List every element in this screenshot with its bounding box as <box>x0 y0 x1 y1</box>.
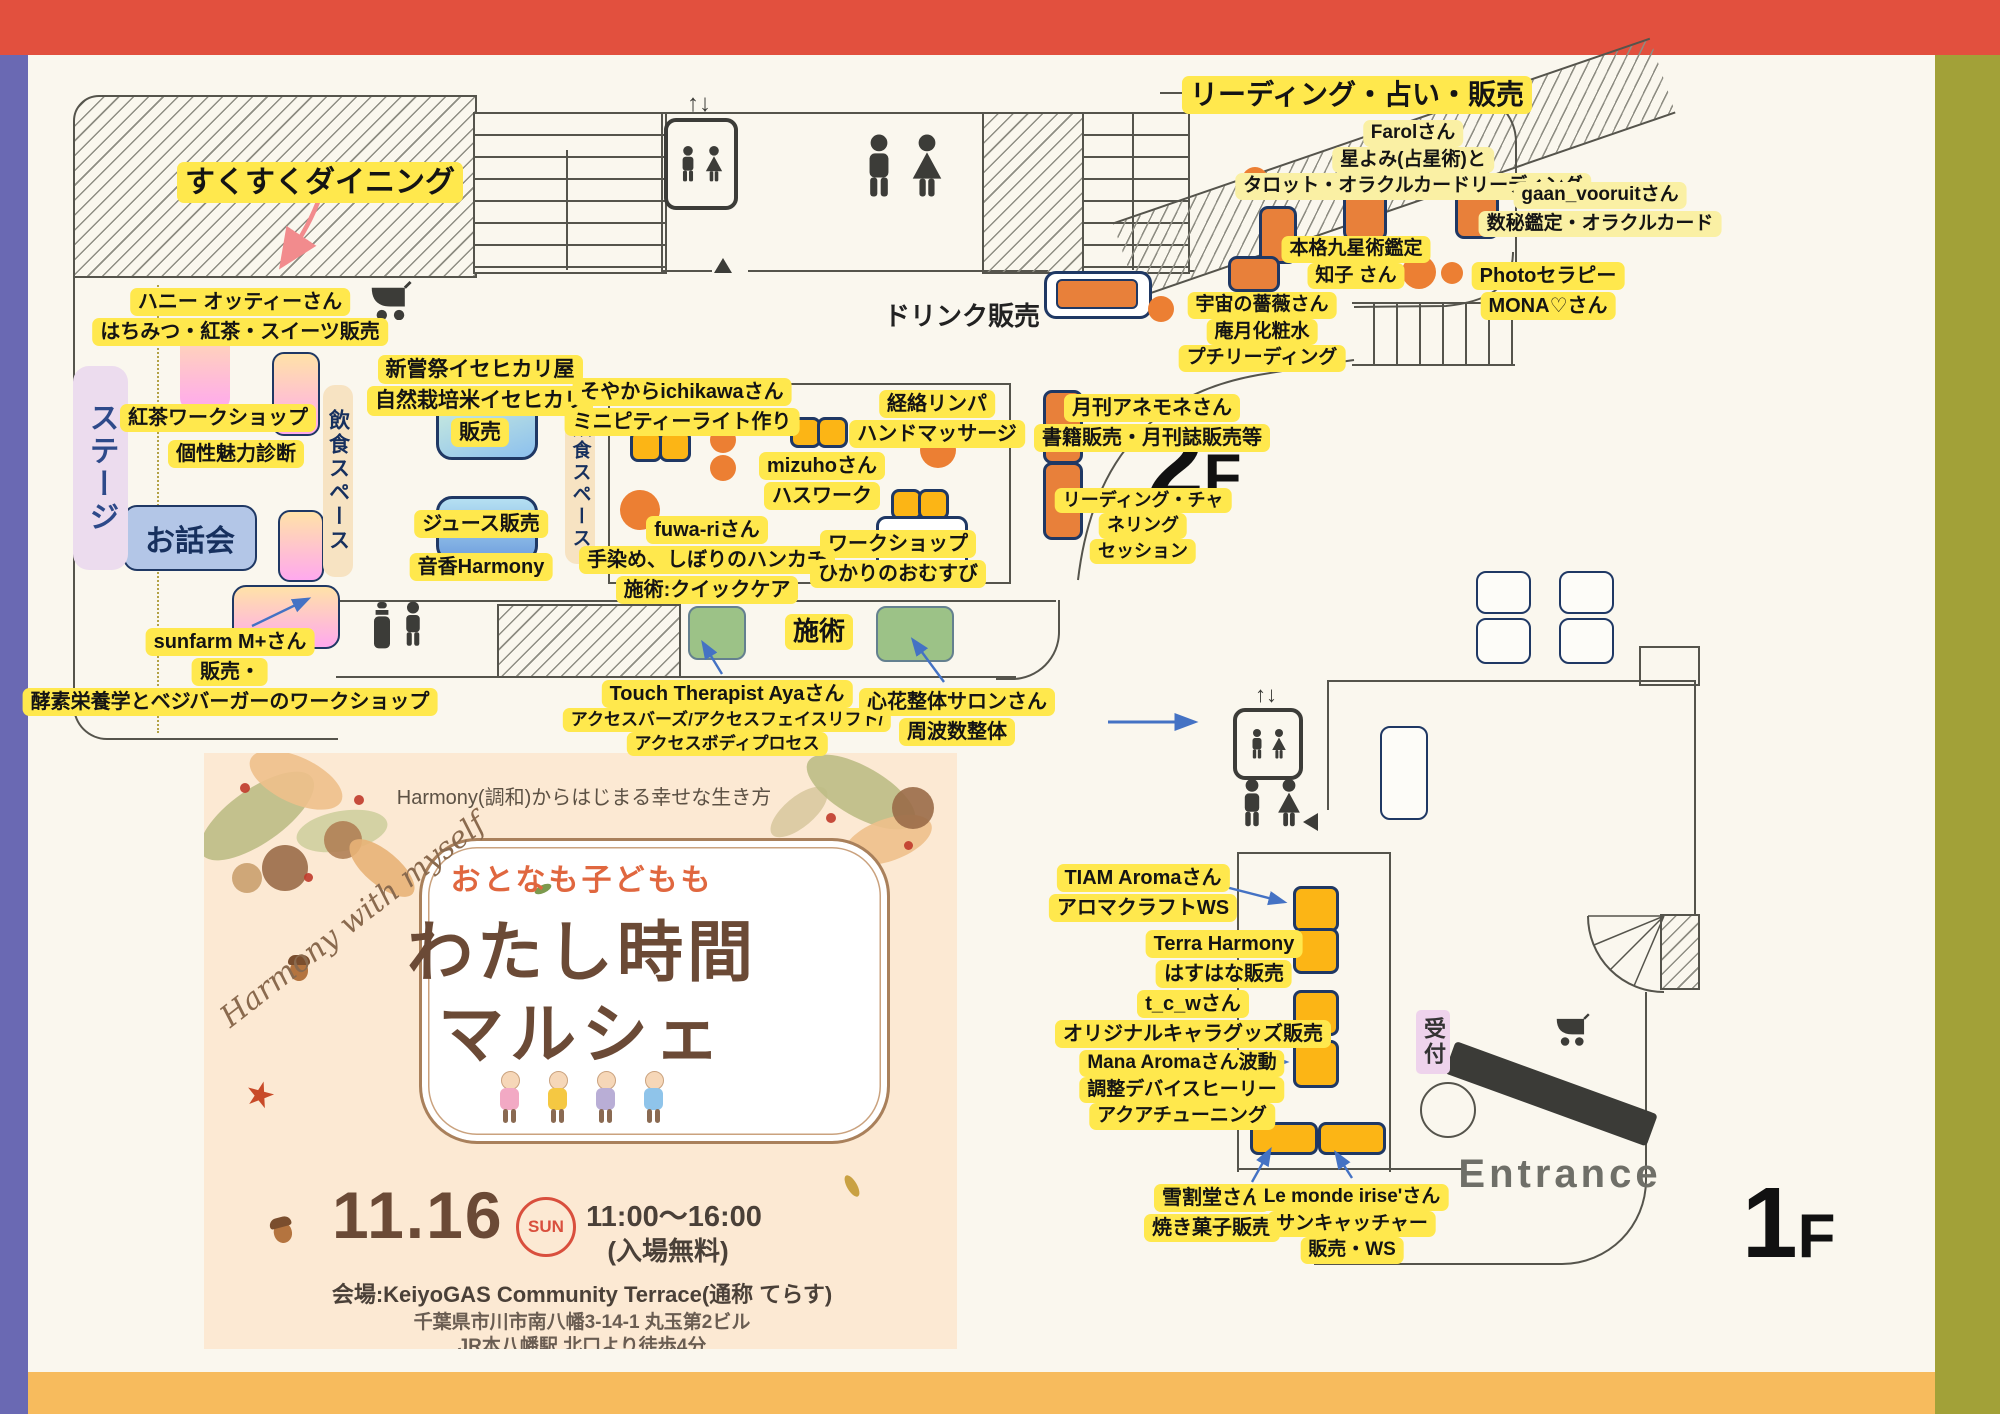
wall-segment <box>661 112 663 272</box>
right-olive-bar <box>1935 55 2000 1414</box>
berry-decoration <box>826 813 836 823</box>
vendor-label-kokohana: 心花整体サロンさん 周波数整体 <box>859 688 1055 746</box>
foliage-decoration <box>232 863 262 893</box>
poster-time: 11:00〜16:00 <box>586 1193 762 1235</box>
vendor-label-terra: Terra Harmony はすはな販売 <box>1146 930 1303 988</box>
kid-figure <box>541 1071 575 1125</box>
vendor-label-fuwari: fuwa-riさん 手染め、しぼりのハンカチ 施術:クイックケア <box>579 516 835 604</box>
berry-decoration <box>240 783 250 793</box>
restroom-icon <box>858 126 948 206</box>
poster-title-line2: マルシェ <box>438 981 726 1077</box>
elevator-arrows: ↑↓ <box>664 92 734 116</box>
poster-time-text: 11:00〜16:00 <box>586 1201 762 1233</box>
reception-label: 受付 <box>1422 1017 1444 1067</box>
wall-notch-room <box>1639 646 1700 686</box>
label-juice: ジュース販売 <box>414 510 548 538</box>
poster-date-text: 11.16 <box>332 1178 504 1252</box>
stairs-fan-treads <box>1588 916 1664 986</box>
vendor-label-soyakara: そやからichikawaさん ミニピティーライト作り <box>565 378 800 436</box>
poster-venue-text: 会場:KeiyoGAS Community Terrace(通称 てらす) <box>332 1282 832 1307</box>
booth-chair <box>1148 296 1174 322</box>
elevator-box <box>664 118 738 210</box>
ohanashikai-box: お話会 <box>123 505 257 571</box>
elevator-icon: ↑↓ <box>664 92 734 210</box>
hatched-area-1f-stairs <box>1660 914 1700 990</box>
acorn-decoration <box>272 1221 295 1245</box>
room-rect <box>1559 618 1614 664</box>
vendor-label-touch-therapist: Touch Therapist Ayaさん アクセスバーズ/アクセスフェイスリフ… <box>563 680 891 756</box>
top-red-bar <box>0 0 2000 55</box>
vendor-label-lemonde: Le monde irise'さん サンキャッチャー 販売・WS <box>1256 1184 1449 1264</box>
kid-figure <box>589 1071 623 1125</box>
vendor-label-keiraku: 経絡リンパ ハンドマッサージ <box>849 390 1025 448</box>
entrance-circle <box>1420 1082 1476 1138</box>
elevator-icon: ↑↓ <box>1233 684 1299 780</box>
room-rect <box>1476 618 1531 664</box>
poster-address-text: 千葉県市川市南八幡3-14-1 丸玉第2ビル <box>414 1312 751 1333</box>
kid-figure <box>493 1071 527 1125</box>
poster-venue: 会場:KeiyoGAS Community Terrace(通称 てらす) <box>332 1277 832 1309</box>
vendor-label-photo-mona: Photoセラピー MONA♡さん <box>1472 262 1625 320</box>
hatched-area-mid <box>982 112 1086 274</box>
poster-free-text: (入場無料) <box>607 1236 728 1266</box>
hatched-area-corridor <box>497 604 681 678</box>
stage-area: ステージ <box>73 366 128 570</box>
poster-free: (入場無料) <box>607 1231 728 1268</box>
vendor-table <box>278 510 324 582</box>
entrance-text: Entrance <box>1458 1152 1661 1196</box>
staircase-top-left <box>473 112 667 274</box>
vendor-label-sunfarm: sunfarm M+さん 販売・ 酵素栄養学とベジバーガーのワークショップ <box>23 628 438 716</box>
vendor-label-gaan: gaan_vooruitさん 数秘鑑定・オラクルカード <box>1479 182 1722 237</box>
foliage-decoration <box>892 787 934 829</box>
poster-title2-text: マルシェ <box>438 997 726 1071</box>
room-rect <box>1559 571 1614 614</box>
vendor-label-mizuho: mizuhoさん ハスワーク <box>759 452 885 510</box>
poster-access: JR本八幡駅 北口より徒歩4分 <box>458 1331 707 1349</box>
stairs-fan-1f <box>1588 916 1664 992</box>
vendor-label-honkaku: 本格九星術鑑定 知子 さん <box>1281 236 1430 289</box>
kids-illustration <box>493 1071 671 1125</box>
treatment-bed <box>688 606 746 660</box>
foliage-decoration <box>262 845 308 891</box>
room-rect <box>1380 726 1428 820</box>
treatment-bed <box>876 606 954 662</box>
label-kosei: 個性魅力診断 <box>168 440 304 468</box>
poster-day-text: SUN <box>528 1217 564 1237</box>
vendor-label-tcw: t_c_wさん オリジナルキャラグッズ販売 <box>1055 990 1331 1048</box>
berry-decoration <box>904 841 913 850</box>
left-purple-bar <box>0 55 28 1414</box>
vendor-label-otoka: 音香Harmony <box>410 553 553 581</box>
ohanashikai-label: お話会 <box>145 516 235 560</box>
booth-chair <box>710 455 736 481</box>
restroom-icon <box>1236 772 1305 834</box>
event-poster: Harmony(調和)からはじまる幸せな生き方 Harmony with mys… <box>204 753 957 1349</box>
vendor-label-niiname: 新嘗祭イセヒカリ屋 自然栽培米イセヒカリ 販売 <box>367 355 593 447</box>
drink-sale-label: ドリンク販売 <box>884 296 1040 333</box>
poster-tagline: Harmony(調和)からはじまる幸せな生き方 <box>397 781 771 810</box>
vendor-label-hikari: ワークショップ ひかりのおむすび <box>810 530 986 588</box>
poster-date: 11.16 <box>332 1177 504 1253</box>
dining-space-label: 飲食スペース <box>328 409 349 553</box>
poster-address: 千葉県市川市南八幡3-14-1 丸玉第2ビル <box>414 1307 751 1334</box>
wall-segment <box>1237 1168 1462 1170</box>
label-reading-sale: リーディング・占い・販売 <box>1182 76 1532 114</box>
corridor-corner <box>996 600 1060 680</box>
stroller-icon <box>1552 1012 1590 1046</box>
wall-segment <box>1327 680 1329 810</box>
vendor-booth-lemonde <box>1318 1122 1386 1155</box>
bottom-orange-bar <box>28 1372 1935 1414</box>
dining-space-strip: 飲食スペース <box>323 385 353 577</box>
event-floor-map: ↑↓ ↑↓ お話会 <box>0 0 2000 1414</box>
stage-label: ステージ <box>86 402 116 534</box>
room-rect <box>1476 571 1531 614</box>
berry-decoration <box>304 873 313 882</box>
label-tea-workshop: 紅茶ワークショップ <box>120 404 316 432</box>
vendor-label-tiam: TIAM Aromaさん アロマクラフトWS <box>1049 864 1237 922</box>
leaf-decoration <box>842 1173 863 1199</box>
entrance-label: Entrance <box>1458 1152 1661 1197</box>
poster-day-badge: SUN <box>516 1197 576 1257</box>
label-sejutsu: 施術 <box>785 614 853 650</box>
up-arrow-icon <box>714 258 732 273</box>
vendor-label-mana: Mana Aromaさん波動 調整デバイスヒーリー アクアチューニング <box>1079 1050 1284 1130</box>
label-reading-session: リーディング・チャ ネリング セッション <box>1055 488 1232 564</box>
vendor-label-uchu: 宇宙の薔薇さん 庵月化粧水 プチリーディング <box>1179 292 1346 372</box>
poster-tagline-text: Harmony(調和)からはじまる幸せな生き方 <box>397 787 771 809</box>
poster-title1-text: わたし時間 <box>407 915 757 989</box>
booth-chair <box>1441 262 1463 284</box>
label-sukusuku-dining: すくすくダイニング <box>177 162 463 203</box>
drink-counter-top <box>1056 279 1138 309</box>
reception-box: 受付 <box>1416 1010 1450 1074</box>
elevator-arrows: ↑↓ <box>1233 684 1299 706</box>
poster-subtitle: おとなも子どもも <box>450 855 713 899</box>
wall-segment <box>1694 680 1696 916</box>
floor1-label: 1F <box>1742 1178 1836 1268</box>
stair-rail <box>566 150 568 270</box>
berry-decoration <box>354 795 364 805</box>
vendor-booth-tiam <box>1293 886 1339 932</box>
poster-access-text: JR本八幡駅 北口より徒歩4分 <box>458 1336 707 1349</box>
drink-sale-text: ドリンク販売 <box>884 301 1040 331</box>
vendor-booth-reading <box>1228 256 1280 292</box>
wall-segment <box>661 270 712 272</box>
vendor-label-anemone: 月刊アネモネさん 書籍販売・月刊誌販売等 <box>1034 394 1270 452</box>
maple-leaf-decoration <box>243 1078 277 1112</box>
left-arrow-icon <box>1303 813 1318 831</box>
elevator-box <box>1233 708 1303 780</box>
booth-square <box>817 417 848 448</box>
poster-subtitle-text: おとなも子どもも <box>450 864 713 897</box>
vendor-label-honey-ottie: ハニー オッティーさん はちみつ・紅茶・スイーツ販売 <box>92 288 388 346</box>
kid-figure <box>637 1071 671 1125</box>
